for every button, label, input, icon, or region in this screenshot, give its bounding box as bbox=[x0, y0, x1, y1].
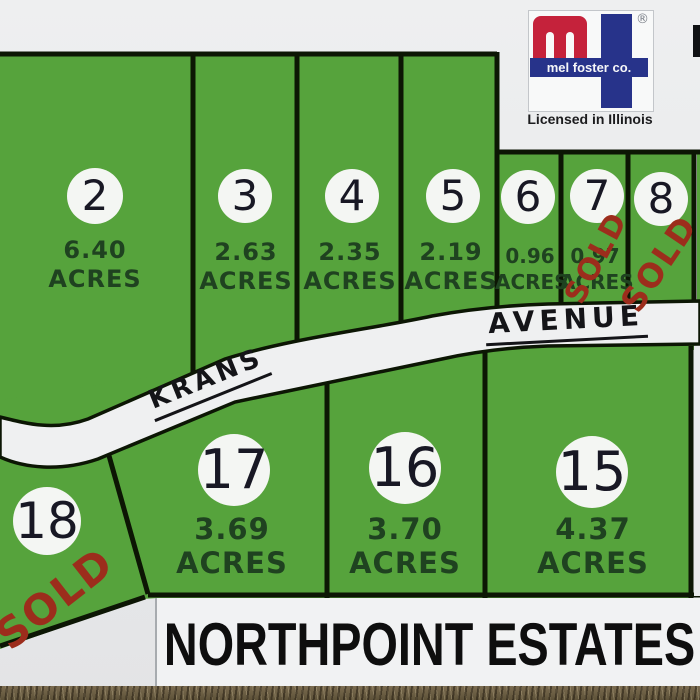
logo-m-icon bbox=[533, 16, 587, 58]
lot-15-number: 15 bbox=[558, 445, 627, 499]
lot-5-acreage-value: 2.19 bbox=[401, 238, 501, 267]
lot-5-number-badge: 5 bbox=[426, 169, 480, 223]
lot-16-acreage-value: 3.70 bbox=[330, 512, 480, 546]
development-title: NORTHPOINT ESTATES bbox=[164, 610, 695, 679]
lot-17-number-badge: 17 bbox=[198, 434, 270, 506]
lot-4-number: 4 bbox=[339, 175, 366, 217]
lot-18-number-badge: 18 bbox=[13, 487, 81, 555]
mel-foster-logo: mel foster co. ® bbox=[528, 10, 654, 112]
lot-16-acres-label: ACRES bbox=[330, 546, 480, 580]
lot-3-acres-label: ACRES bbox=[196, 267, 296, 296]
lot-16-number-badge: 16 bbox=[369, 432, 441, 504]
lot-17-acreage-value: 3.69 bbox=[157, 512, 307, 546]
lot-6-acreage-value: 0.96 bbox=[495, 243, 565, 269]
logo-m-notch bbox=[546, 32, 554, 58]
lot-17-acreage: 3.69ACRES bbox=[157, 512, 307, 580]
brand-name: mel foster co. bbox=[547, 61, 632, 74]
lot-4-acreage-value: 2.35 bbox=[300, 238, 400, 267]
lot-5-acres-label: ACRES bbox=[401, 267, 501, 296]
lot-3-acreage: 2.63ACRES bbox=[196, 238, 296, 296]
lot-2-number: 2 bbox=[82, 175, 109, 217]
lot-4-acreage: 2.35ACRES bbox=[300, 238, 400, 296]
lot-6-number-badge: 6 bbox=[501, 170, 555, 224]
lot-16-acreage: 3.70ACRES bbox=[330, 512, 480, 580]
lot-16-number: 16 bbox=[371, 441, 440, 495]
lot-3-acreage-value: 2.63 bbox=[196, 238, 296, 267]
lot-17-acres-label: ACRES bbox=[157, 546, 307, 580]
sign-right-margin bbox=[694, 350, 700, 596]
lot-17-number: 17 bbox=[200, 443, 269, 497]
lot-4-number-badge: 4 bbox=[325, 169, 379, 223]
registered-trademark-icon: ® bbox=[636, 12, 649, 27]
license-text: Licensed in Illinois bbox=[520, 111, 660, 127]
lot-4-acres-label: ACRES bbox=[300, 267, 400, 296]
lot-2-acreage-value: 6.40 bbox=[35, 236, 155, 265]
lot-5-number: 5 bbox=[440, 175, 467, 217]
lot-15-number-badge: 15 bbox=[556, 436, 628, 508]
lot-2-number-badge: 2 bbox=[67, 168, 123, 224]
plat-sign-photo: KRANS AVENUE 2 3 4 5 6 7 8 15 16 17 18 6… bbox=[0, 0, 700, 700]
lot-3-number-badge: 3 bbox=[218, 169, 272, 223]
lot-2-acres-label: ACRES bbox=[35, 265, 155, 294]
lot-18-number: 18 bbox=[15, 496, 79, 546]
adjacent-sign-edge bbox=[693, 25, 700, 57]
lot-5-acreage: 2.19ACRES bbox=[401, 238, 501, 296]
lot-3-number: 3 bbox=[232, 175, 259, 217]
grass-ground bbox=[0, 686, 700, 700]
lot-2-acreage: 6.40ACRES bbox=[35, 236, 155, 294]
lot-15-acres-label: ACRES bbox=[518, 546, 668, 580]
lot-15-acreage-value: 4.37 bbox=[518, 512, 668, 546]
lot-6-acreage: 0.96ACRES bbox=[495, 243, 565, 295]
development-name-banner: NORTHPOINT ESTATES bbox=[155, 598, 700, 690]
lot-6-number: 6 bbox=[515, 176, 542, 218]
lot-6-acres-label: ACRES bbox=[495, 269, 565, 295]
logo-brand-bar: mel foster co. bbox=[530, 58, 648, 77]
logo-m-notch bbox=[566, 32, 574, 58]
lot-15-acreage: 4.37ACRES bbox=[518, 512, 668, 580]
